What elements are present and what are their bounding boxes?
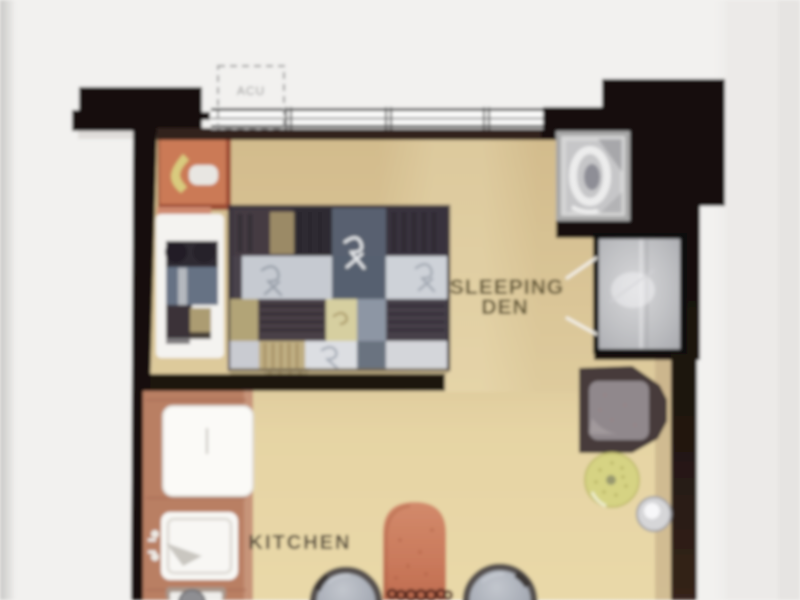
svg-text:ACU: ACU (237, 84, 265, 98)
svg-text:KITCHEN: KITCHEN (249, 532, 352, 554)
svg-text:DEN: DEN (481, 296, 528, 319)
